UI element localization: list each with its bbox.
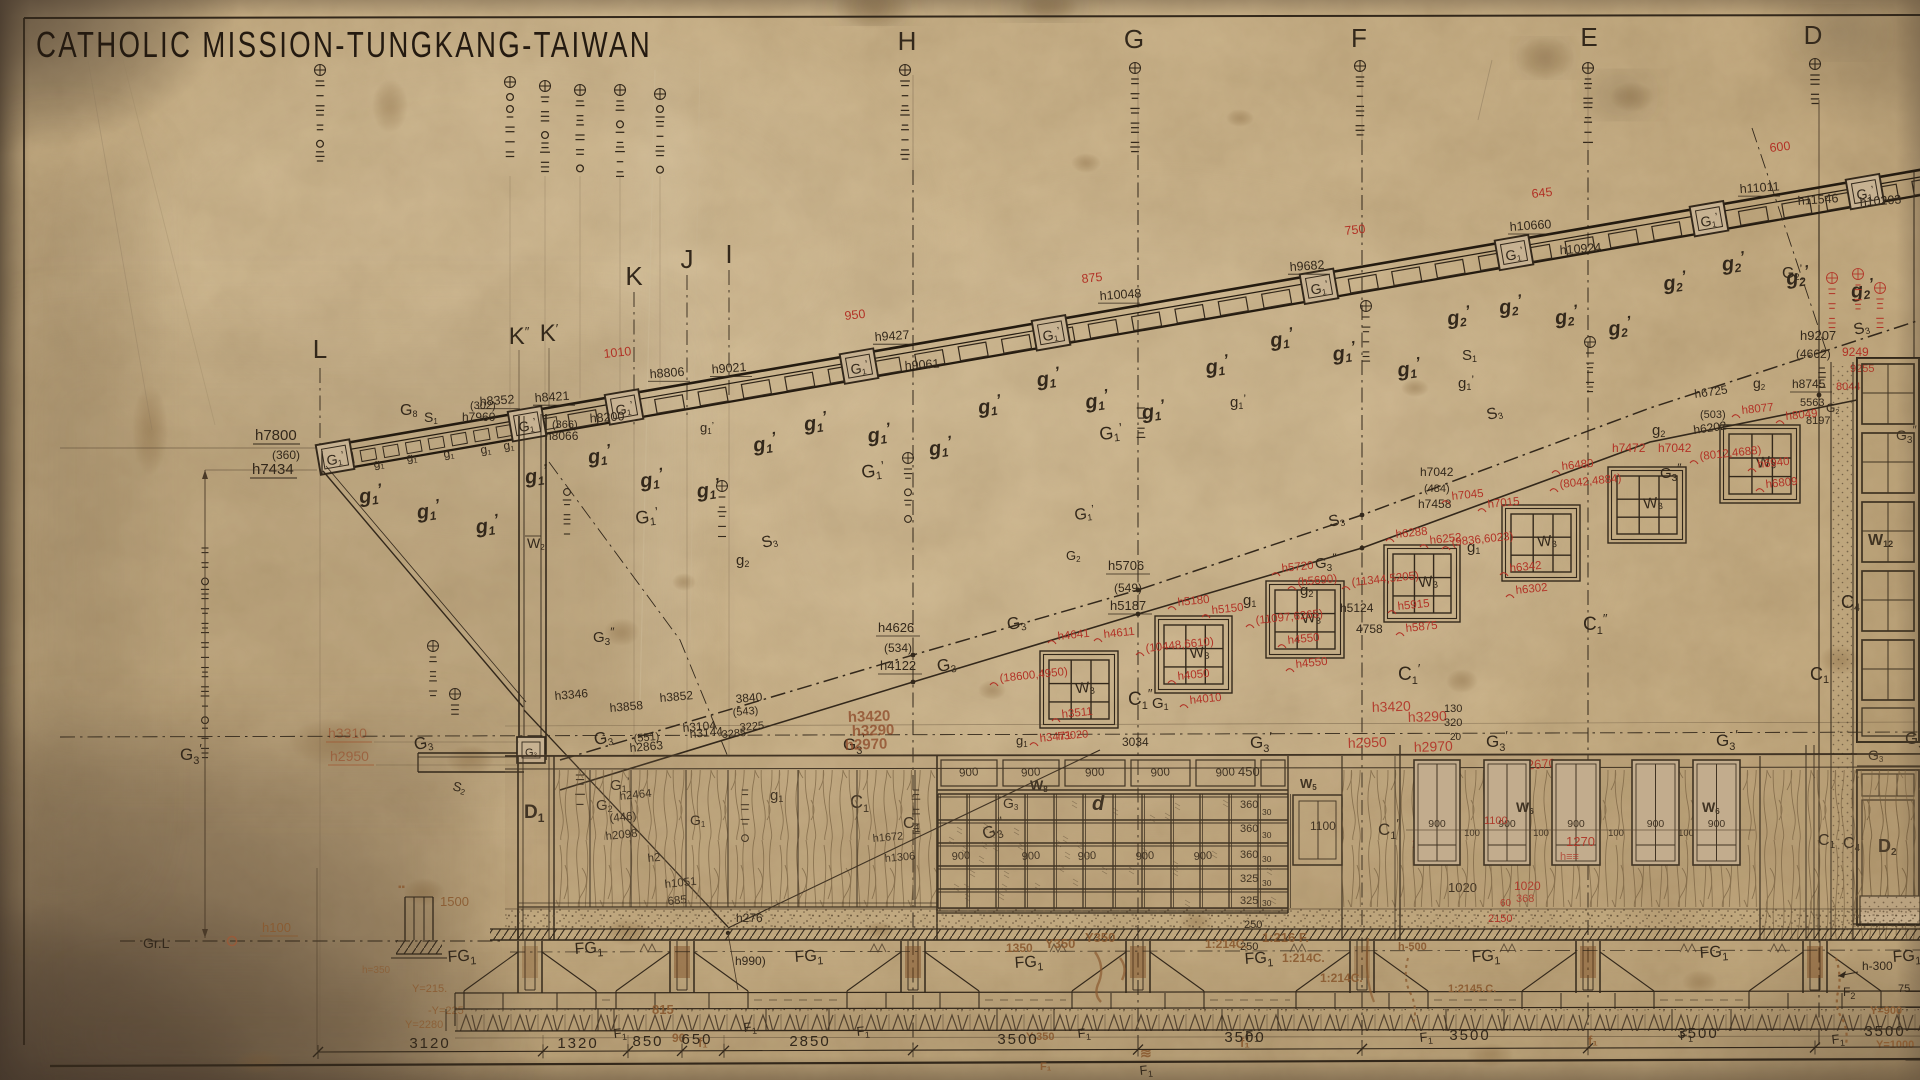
svg-text:Y=900: Y=900: [1870, 1005, 1902, 1017]
svg-text:h5706: h5706: [1108, 558, 1144, 573]
svg-text:3120: 3120: [409, 1035, 450, 1052]
svg-text:3500: 3500: [1864, 1023, 1905, 1040]
svg-text:3840: 3840: [735, 690, 763, 706]
svg-text:Y=215.: Y=215.: [412, 983, 447, 995]
svg-text:h2970: h2970: [845, 736, 888, 754]
svg-text:750: 750: [1344, 222, 1366, 238]
svg-text:G1’: G1’: [1309, 279, 1329, 299]
svg-text:3034: 3034: [1122, 735, 1149, 749]
svg-text:h2863: h2863: [629, 738, 664, 755]
svg-text:E: E: [1580, 22, 1597, 52]
svg-text:h9682: h9682: [1289, 258, 1325, 274]
svg-text:3500: 3500: [997, 1031, 1038, 1048]
svg-text:h7042: h7042: [1420, 465, 1454, 479]
svg-text:h=350: h=350: [362, 965, 391, 976]
svg-text:h7042: h7042: [1658, 441, 1692, 455]
svg-text:1500: 1500: [440, 894, 469, 909]
svg-text:h7800: h7800: [255, 427, 297, 444]
svg-text:h8421: h8421: [534, 389, 570, 405]
svg-text:h11546: h11546: [1797, 191, 1839, 208]
svg-text:G3′: G3′: [1486, 728, 1508, 754]
svg-text:h2950: h2950: [330, 748, 369, 764]
svg-text:G1’: G1’: [325, 450, 345, 470]
svg-text:2850: 2850: [789, 1033, 830, 1050]
svg-text:1010: 1010: [603, 344, 632, 361]
svg-text:▪▪: ▪▪: [398, 882, 406, 893]
svg-text:h5187: h5187: [1110, 598, 1146, 613]
svg-text:(543): (543): [732, 705, 759, 719]
svg-text:F₁: F₁: [1040, 1061, 1052, 1073]
svg-text:G3′: G3′: [180, 741, 202, 767]
svg-text:5563: 5563: [1800, 397, 1824, 409]
svg-text:1:2145.C.: 1:2145.C.: [1448, 983, 1496, 995]
svg-text:G1’: G1’: [849, 359, 869, 379]
svg-text:3225: 3225: [739, 720, 764, 734]
svg-text:1:214C.: 1:214C.: [1320, 971, 1363, 985]
svg-text:3500: 3500: [1224, 1029, 1265, 1046]
svg-text:h7960: h7960: [462, 410, 496, 424]
svg-text:9249: 9249: [1842, 345, 1869, 359]
svg-text:h9207: h9207: [1800, 328, 1836, 343]
svg-text:Y=2280: Y=2280: [405, 1019, 443, 1031]
svg-text:320: 320: [1444, 717, 1462, 729]
svg-text:G1’: G1’: [1041, 325, 1061, 345]
svg-text:h-300: h-300: [1862, 959, 1893, 973]
svg-text:h4122: h4122: [880, 658, 916, 673]
svg-text:G2’: G2’: [1782, 262, 1802, 282]
svg-text:K: K: [625, 261, 643, 291]
svg-text:G1’: G1’: [1699, 211, 1719, 231]
svg-text:h8066: h8066: [545, 429, 579, 443]
svg-text:4758: 4758: [1356, 622, 1383, 636]
svg-text:h9021: h9021: [711, 360, 747, 376]
svg-text:(534): (534): [884, 641, 912, 655]
svg-text:3500: 3500: [1677, 1025, 1718, 1042]
svg-text:G1’: G1’: [1098, 420, 1124, 446]
svg-text:h990): h990): [735, 954, 766, 968]
svg-text:(549): (549): [1114, 581, 1142, 595]
svg-text:h5124: h5124: [1340, 601, 1374, 615]
svg-text:h3144: h3144: [689, 724, 724, 741]
svg-text:h10660: h10660: [1509, 217, 1552, 234]
svg-text:h9061: h9061: [904, 357, 940, 373]
svg-text:h10203: h10203: [1859, 192, 1902, 209]
svg-text:h3858: h3858: [609, 698, 644, 715]
svg-text:h-500: h-500: [1398, 941, 1427, 953]
svg-text:G1’: G1’: [860, 458, 886, 484]
svg-text:h100: h100: [262, 920, 291, 935]
svg-text:f₁: f₁: [1588, 1033, 1598, 1048]
svg-text:1:214C.: 1:214C.: [1282, 951, 1325, 965]
svg-text:h3852: h3852: [659, 688, 694, 705]
svg-text:650: 650: [681, 1031, 712, 1048]
svg-text:600: 600: [1769, 139, 1791, 155]
svg-text:(360): (360): [272, 448, 300, 462]
svg-text:h8745: h8745: [1792, 377, 1826, 391]
svg-text:1320: 1320: [557, 1035, 598, 1052]
svg-text:G3′: G3′: [1250, 729, 1272, 755]
svg-text:h2970: h2970: [1414, 738, 1454, 755]
svg-text:h7434: h7434: [252, 461, 294, 478]
svg-text:h3346: h3346: [554, 686, 589, 703]
svg-text:645: 645: [1531, 185, 1553, 201]
svg-text:815: 815: [652, 1002, 674, 1017]
svg-text:G: G: [1124, 24, 1144, 54]
svg-text:130: 130: [1444, 703, 1462, 715]
svg-text:3500: 3500: [1449, 1027, 1490, 1044]
svg-text:F: F: [1351, 23, 1367, 53]
svg-text:J: J: [681, 244, 694, 274]
svg-text:Y350: Y350: [1045, 936, 1075, 951]
svg-text:950: 950: [844, 307, 866, 323]
svg-text:G1’: G1’: [517, 416, 537, 436]
svg-text:G3′: G3′: [1716, 727, 1738, 753]
svg-text:h8806: h8806: [649, 365, 685, 381]
svg-text:Y=1000: Y=1000: [1876, 1039, 1914, 1051]
svg-text:Gr.L: Gr.L: [143, 935, 170, 951]
svg-text:H: H: [898, 26, 917, 56]
svg-text:20: 20: [1450, 732, 1462, 743]
svg-text:h2950: h2950: [1348, 734, 1388, 751]
svg-text:h3290: h3290: [1408, 708, 1448, 725]
svg-text:1350: 1350: [1006, 941, 1033, 955]
svg-text:h8200: h8200: [589, 409, 625, 425]
svg-text:h3310: h3310: [328, 725, 367, 741]
svg-text:CATHOLIC MISSION-TUNGKANG-TAIW: CATHOLIC MISSION-TUNGKANG-TAIWAN: [36, 24, 652, 65]
svg-text:G1’: G1’: [634, 504, 660, 530]
svg-text:I: I: [725, 239, 732, 269]
svg-text:h10048: h10048: [1099, 286, 1142, 303]
svg-text:1:214C.: 1:214C.: [1205, 937, 1248, 951]
svg-text:h10924: h10924: [1559, 240, 1602, 257]
svg-text:875: 875: [1081, 270, 1103, 286]
svg-text:1:216 F.: 1:216 F.: [1262, 930, 1309, 945]
svg-text:h3420: h3420: [1372, 698, 1412, 715]
svg-text:(484): (484): [1424, 483, 1450, 495]
svg-text:Y350: Y350: [1085, 930, 1115, 945]
svg-text:≋: ≋: [1140, 1045, 1152, 1061]
svg-text:C1′: C1′: [1398, 661, 1421, 687]
svg-text:h4626: h4626: [878, 620, 914, 635]
svg-text:h7458: h7458: [1418, 497, 1452, 511]
svg-text:75: 75: [1898, 983, 1910, 995]
svg-text:G1’: G1’: [1504, 245, 1524, 265]
svg-text:h9427: h9427: [874, 328, 910, 344]
svg-text:h7472: h7472: [1612, 441, 1646, 455]
svg-text:850: 850: [632, 1033, 663, 1050]
svg-text:L: L: [313, 334, 327, 364]
